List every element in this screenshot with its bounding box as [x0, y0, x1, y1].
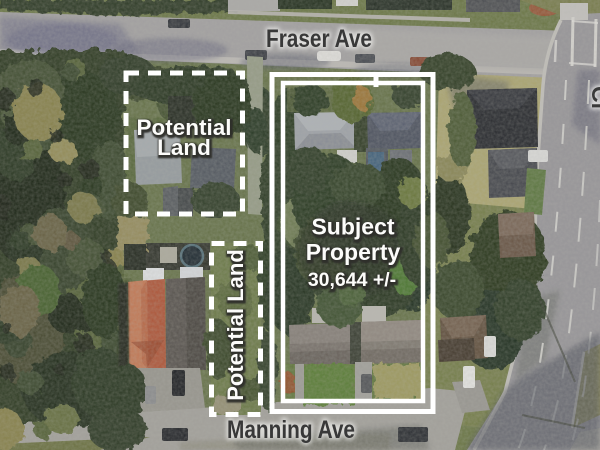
svg-text:Fraser Ave: Fraser Ave: [266, 25, 372, 53]
svg-text:30,644 +/-: 30,644 +/-: [308, 269, 396, 291]
svg-text:Subject: Subject: [311, 214, 394, 240]
svg-text:Potential Land: Potential Land: [223, 249, 248, 401]
svg-text:Cl: Cl: [587, 86, 600, 109]
svg-text:Land: Land: [157, 135, 211, 160]
svg-text:Property: Property: [306, 239, 401, 265]
svg-text:Manning Ave: Manning Ave: [227, 416, 355, 444]
